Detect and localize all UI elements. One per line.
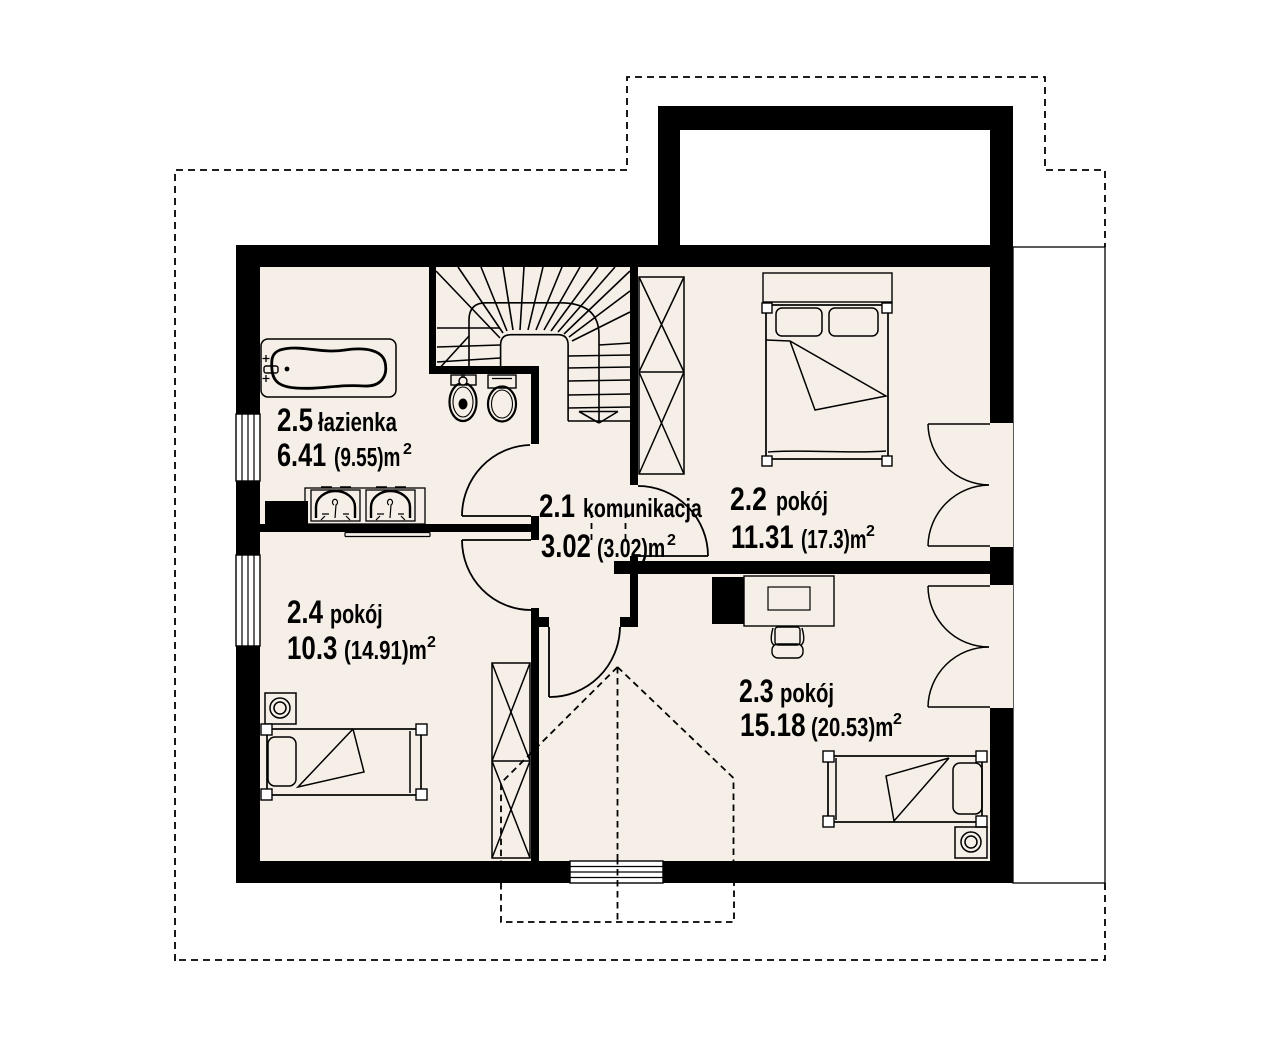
svg-text:2: 2 — [427, 634, 436, 651]
svg-text:15.18: 15.18 — [740, 709, 806, 744]
svg-text:2: 2 — [893, 711, 902, 728]
svg-text:(14.91)m: (14.91)m — [344, 636, 427, 665]
svg-text:11.31: 11.31 — [731, 520, 794, 555]
svg-text:(17.3)m: (17.3)m — [801, 524, 867, 554]
svg-text:6.41: 6.41 — [277, 438, 326, 474]
svg-text:10.3: 10.3 — [287, 632, 337, 667]
svg-text:2.2: 2.2 — [730, 482, 767, 518]
svg-text:(3.02)m: (3.02)m — [597, 533, 665, 562]
svg-text:2.1: 2.1 — [539, 490, 575, 525]
svg-text:pokój: pokój — [776, 486, 828, 515]
svg-text:łazienka: łazienka — [318, 408, 398, 437]
svg-text:2: 2 — [403, 441, 412, 458]
svg-text:2.3: 2.3 — [739, 674, 774, 710]
svg-text:2.5: 2.5 — [277, 404, 313, 439]
svg-text:2: 2 — [866, 523, 875, 540]
svg-text:pokój: pokój — [780, 679, 834, 708]
svg-text:komunikacja: komunikacja — [583, 493, 702, 522]
svg-text:pokój: pokój — [330, 599, 383, 628]
svg-text:2: 2 — [667, 532, 676, 549]
svg-text:(20.53)m: (20.53)m — [811, 713, 893, 742]
svg-text:3.02: 3.02 — [541, 529, 591, 564]
svg-text:2.4: 2.4 — [287, 596, 324, 631]
svg-text:(9.55)m: (9.55)m — [334, 442, 400, 472]
